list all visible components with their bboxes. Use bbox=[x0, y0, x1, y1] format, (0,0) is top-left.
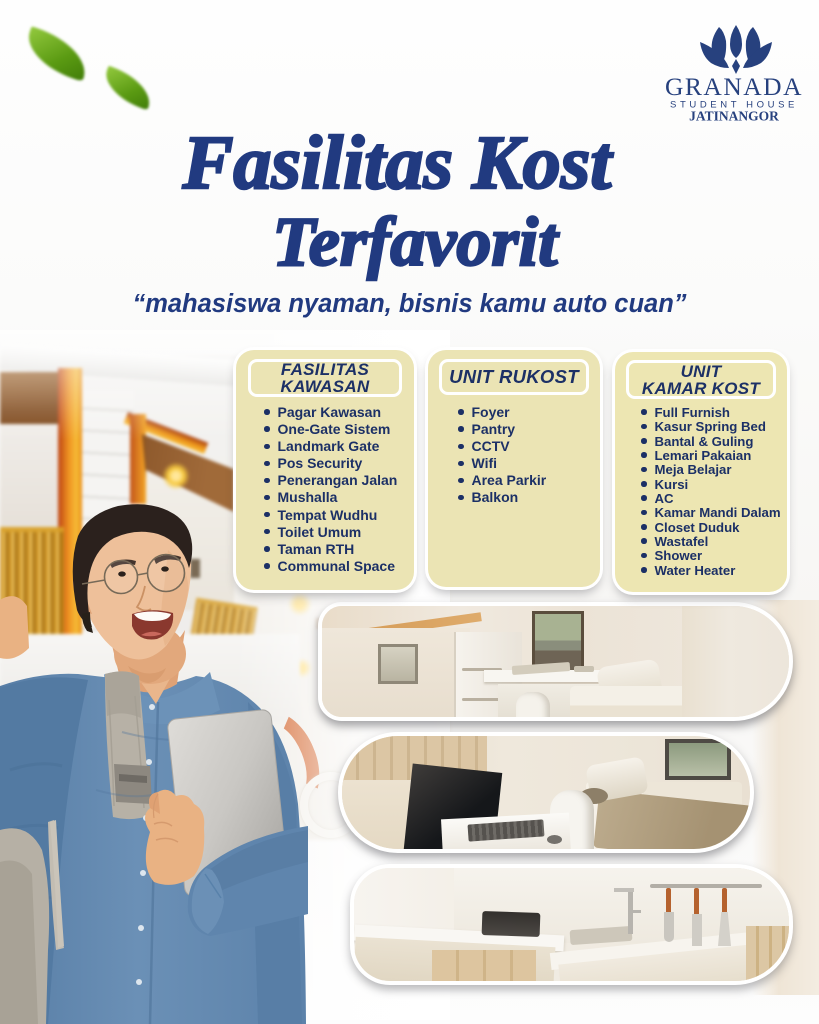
svg-text:GRANADA: GRANADA bbox=[665, 72, 803, 101]
svg-text:Terfavorit: Terfavorit bbox=[272, 204, 560, 281]
svg-text:JATINANGOR: JATINANGOR bbox=[689, 109, 779, 124]
svg-text:Fasilitas Kost: Fasilitas Kost bbox=[182, 121, 615, 205]
